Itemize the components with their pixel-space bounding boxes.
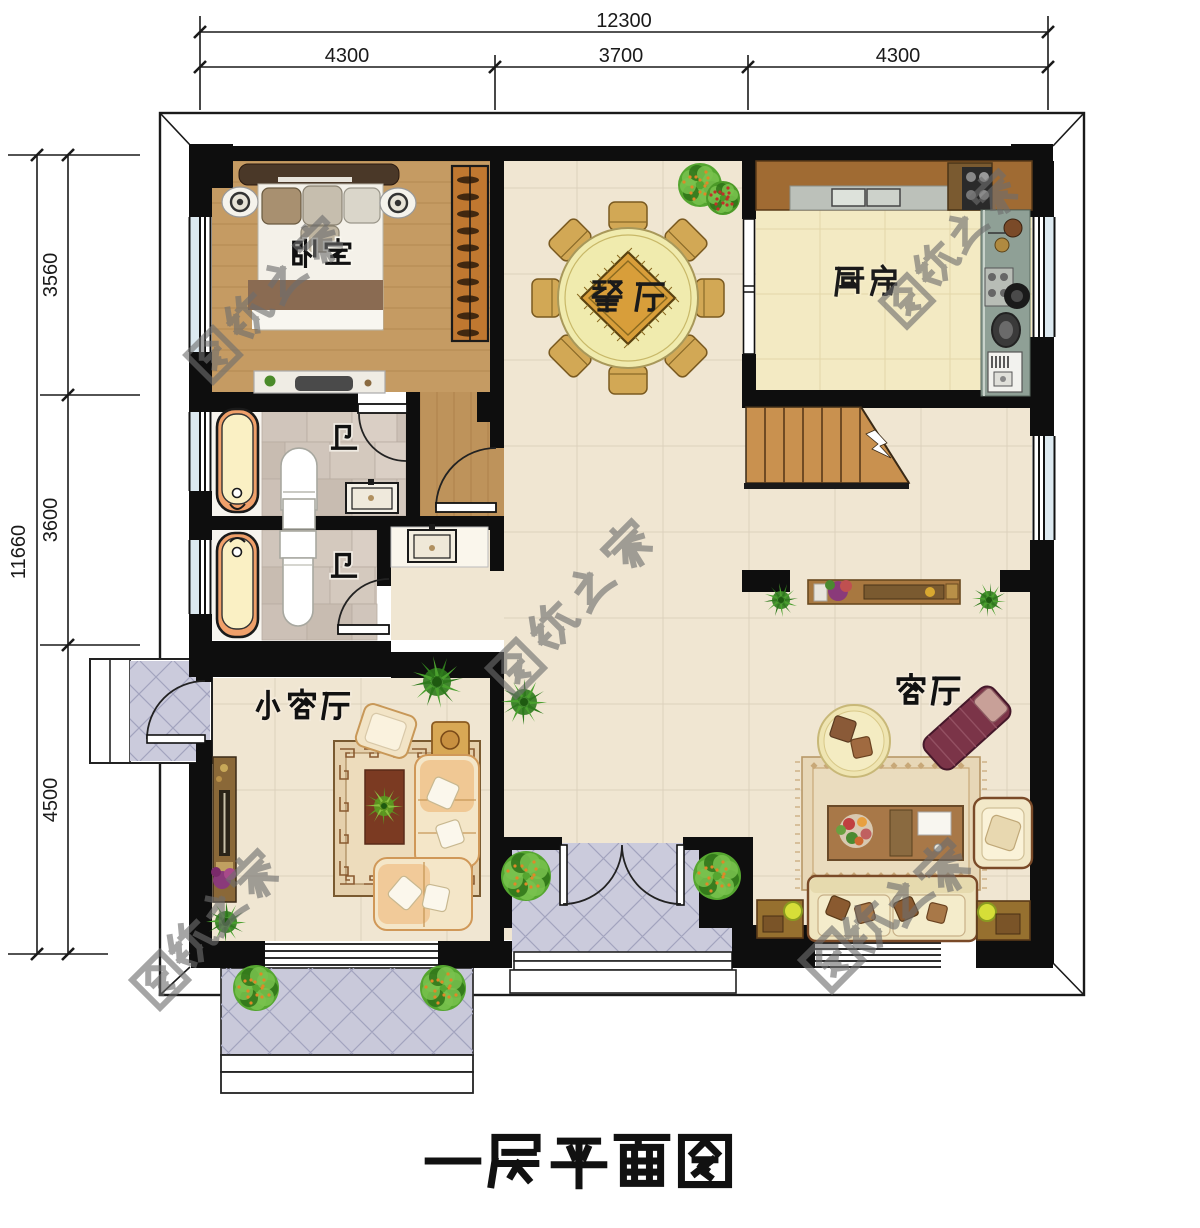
svg-text:4300: 4300 (876, 45, 921, 67)
svg-text:3560: 3560 (40, 253, 62, 298)
svg-text:11660: 11660 (8, 525, 30, 579)
svg-text:4300: 4300 (325, 45, 370, 67)
svg-text:3600: 3600 (40, 498, 62, 543)
svg-text:12300: 12300 (596, 10, 652, 32)
svg-text:3700: 3700 (599, 45, 644, 67)
svg-text:4500: 4500 (40, 778, 62, 823)
